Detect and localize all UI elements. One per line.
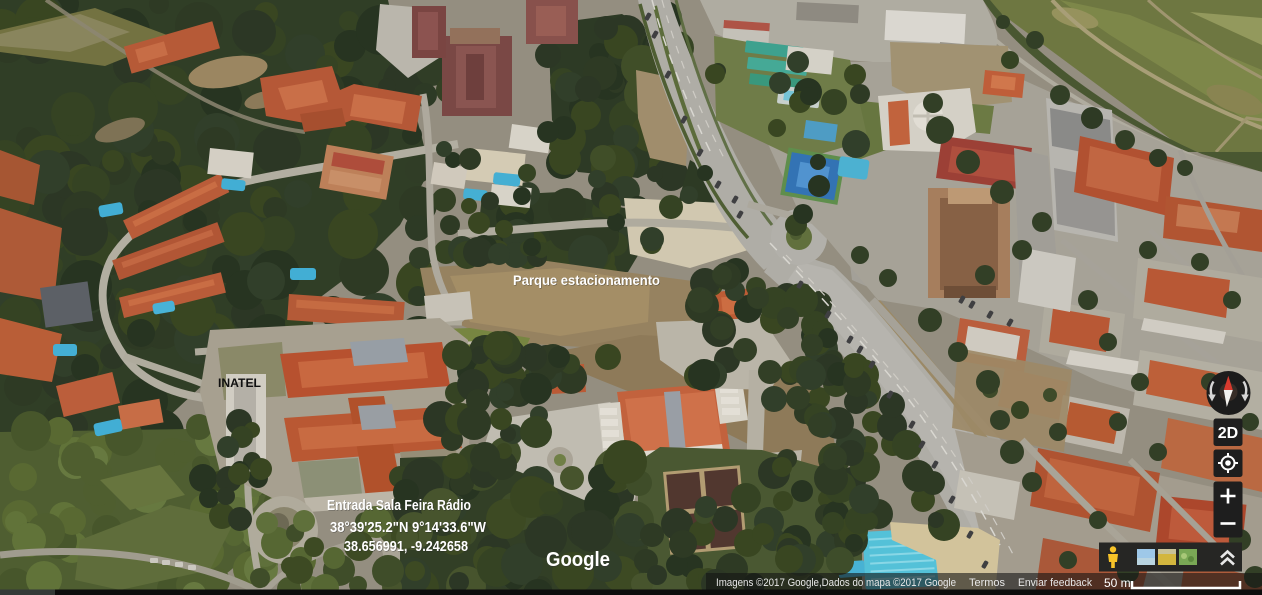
svg-text:Entrada Sala Feira Rádio: Entrada Sala Feira Rádio (327, 498, 471, 514)
svg-text:2D: 2D (1218, 425, 1238, 442)
svg-text:INATEL: INATEL (218, 376, 261, 390)
svg-text:Imagens ©2017 Google,Dados do: Imagens ©2017 Google,Dados do mapa ©2017… (716, 577, 956, 589)
svg-text:Termos: Termos (969, 577, 1005, 589)
svg-text:50 m: 50 m (1104, 576, 1131, 590)
svg-text:Enviar feedback: Enviar feedback (1018, 577, 1092, 589)
svg-text:Parque estacionamento: Parque estacionamento (513, 272, 660, 288)
svg-text:Google: Google (546, 549, 610, 571)
svg-text:38°39'25.2"N 9°14'33.6"W: 38°39'25.2"N 9°14'33.6"W (330, 519, 487, 536)
svg-text:38.656991, -9.242658: 38.656991, -9.242658 (344, 538, 468, 555)
